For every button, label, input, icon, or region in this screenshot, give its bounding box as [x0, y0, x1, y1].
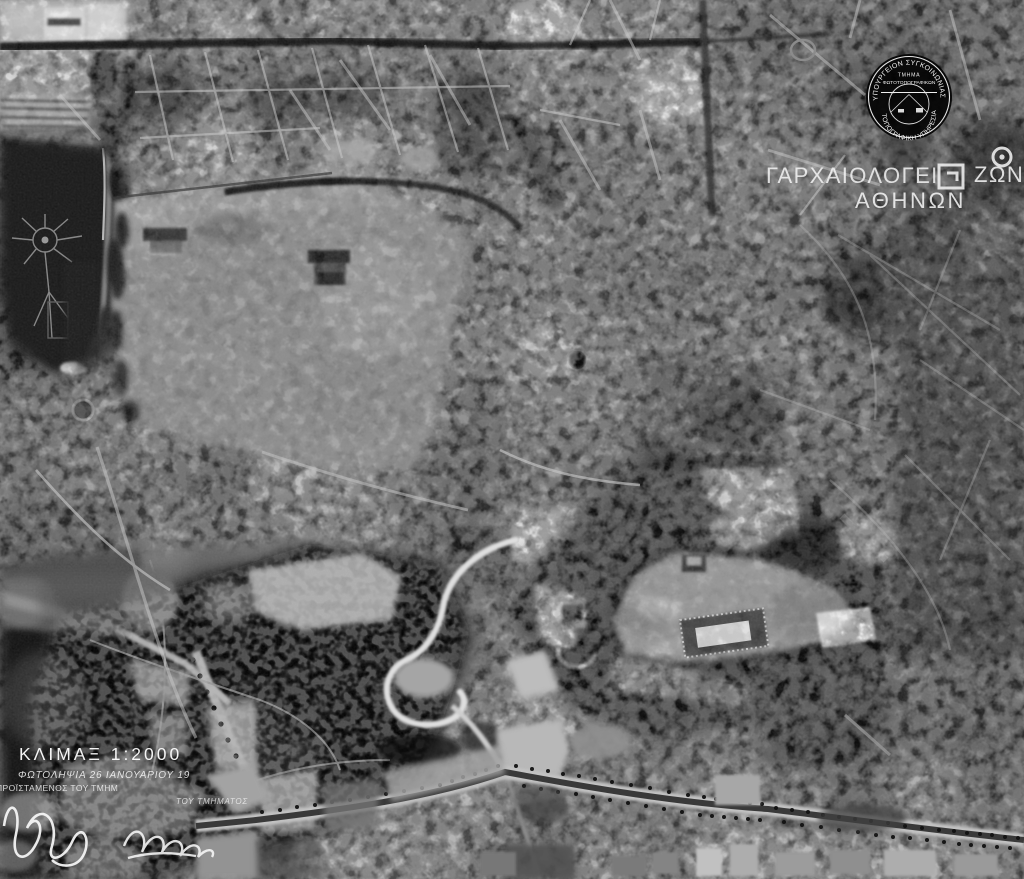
svg-text:ΦΩΤΟΤΟΠΟΓΡΑΦΙΚΩΝ: ΦΩΤΟΤΟΠΟΓΡΑΦΙΚΩΝ	[883, 80, 936, 86]
svg-text:ΠΡΟΪΣΤΑΜΕΝΟΣ ΤΟΥ ΤΜΗΜ: ΠΡΟΪΣΤΑΜΕΝΟΣ ΤΟΥ ΤΜΗΜ	[0, 783, 118, 793]
svg-text:ΓΑΡΧΑΙΟΛΟΓΕΙ: ΓΑΡΧΑΙΟΛΟΓΕΙ	[766, 163, 939, 188]
svg-text:ΤΟΥ ΤΜΗΜΑΤΟΣ: ΤΟΥ ΤΜΗΜΑΤΟΣ	[176, 797, 248, 806]
svg-text:ΚΛΙΜΑΞ 1:2000: ΚΛΙΜΑΞ 1:2000	[19, 744, 182, 764]
svg-text:ΤΜΗΜΑ: ΤΜΗΜΑ	[898, 73, 921, 79]
svg-text:ΑΘΗΝΩΝ: ΑΘΗΝΩΝ	[855, 188, 966, 213]
svg-text:ΦΩΤΟΛΗΨΙΑ 26 ΙΑΝΟΥΑΡΙΟΥ 19: ΦΩΤΟΛΗΨΙΑ 26 ΙΑΝΟΥΑΡΙΟΥ 19	[18, 770, 190, 781]
